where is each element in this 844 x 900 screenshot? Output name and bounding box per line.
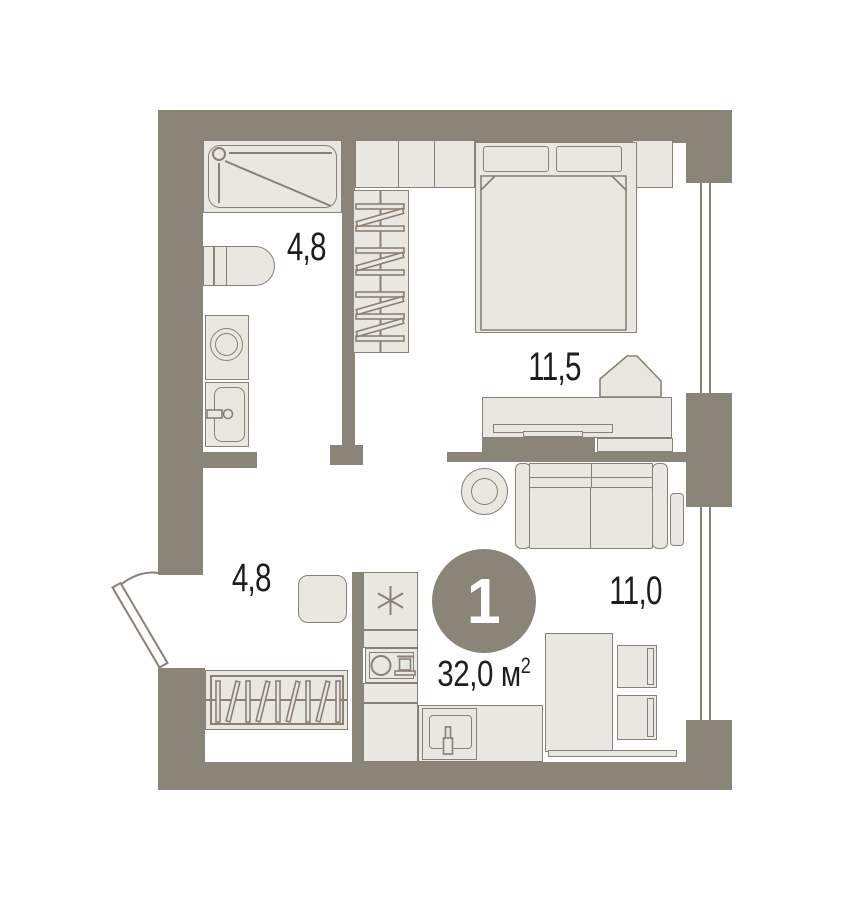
room-label-hall: 4,8 [211, 558, 291, 598]
unit-number: 1 [467, 564, 501, 638]
pillow-left [483, 146, 549, 172]
coat-rack [205, 670, 348, 730]
wall-bottom-right-pier [686, 720, 732, 790]
stove-inner [369, 652, 414, 679]
kitchen-counter-seg3 [363, 703, 418, 762]
wall-top-right-pier [686, 110, 732, 183]
washing-machine [205, 315, 249, 380]
wall-bottom [158, 762, 732, 790]
floor-plan: 4,8 11,5 4,8 11,0 1 32,0 м2 [0, 0, 844, 900]
cabinet-right-of-bed [632, 140, 673, 188]
chair-backrest [647, 648, 654, 685]
sofa-back [529, 463, 653, 489]
shelf-right [597, 438, 673, 452]
window-living [700, 507, 711, 720]
chair-backrest [647, 698, 654, 737]
toilet-tank [203, 246, 228, 286]
fridge [363, 572, 418, 630]
wall-partition-thick [482, 438, 595, 452]
wall-top [158, 110, 732, 143]
kitchen-sink-basin [429, 715, 472, 749]
pillow-right [556, 146, 622, 172]
sofa-back-divider [591, 464, 592, 488]
cabinet-row [355, 140, 475, 188]
total-area-unit: м [501, 653, 521, 694]
kitchen-counter-seg2 [363, 683, 418, 703]
wall-bathroom-stub [196, 452, 257, 468]
sofa-seat-left [529, 487, 592, 549]
bathroom-sink-basin [214, 387, 245, 442]
cabinet-divider [398, 141, 399, 187]
armchair [600, 356, 661, 397]
room-label-bedroom: 11,5 [514, 347, 594, 387]
stove [365, 648, 418, 683]
side-table [670, 493, 684, 546]
room-label-living: 11,0 [595, 571, 675, 611]
shower-tray-inner [208, 145, 337, 208]
cabinet-divider [434, 141, 435, 187]
room-label-bathroom: 4,8 [266, 227, 346, 267]
wall-left [158, 110, 203, 575]
tv-base [523, 431, 583, 437]
washing-machine-drum [215, 333, 238, 356]
chair-bottom [617, 695, 657, 740]
total-area-sup: 2 [521, 653, 531, 678]
table-ledge [548, 750, 677, 757]
stool [298, 575, 347, 623]
unit-number-badge: 1 [432, 549, 536, 653]
total-area: 32,0 м2 [414, 656, 554, 692]
wall-partition-thin [447, 452, 687, 462]
total-area-value: 32,0 [437, 653, 493, 694]
sofa-arm-right [652, 463, 668, 549]
dining-table [545, 633, 613, 752]
round-rug-inner [471, 478, 498, 505]
wall-bathroom-right-foot [330, 445, 363, 465]
sofa-seat-right [590, 487, 653, 549]
shower-tray [203, 140, 342, 213]
wall-mid-right-pier [686, 393, 732, 507]
entrance-door-icon [113, 573, 168, 668]
wardrobe-hanging [353, 190, 409, 353]
kitchen-counter-seg1 [363, 630, 418, 648]
wall-kitchen-strip [352, 572, 363, 762]
window-bedroom [700, 183, 711, 393]
bathroom-sink [205, 382, 249, 447]
chair-top [617, 645, 657, 688]
kitchen-sink [422, 708, 477, 760]
